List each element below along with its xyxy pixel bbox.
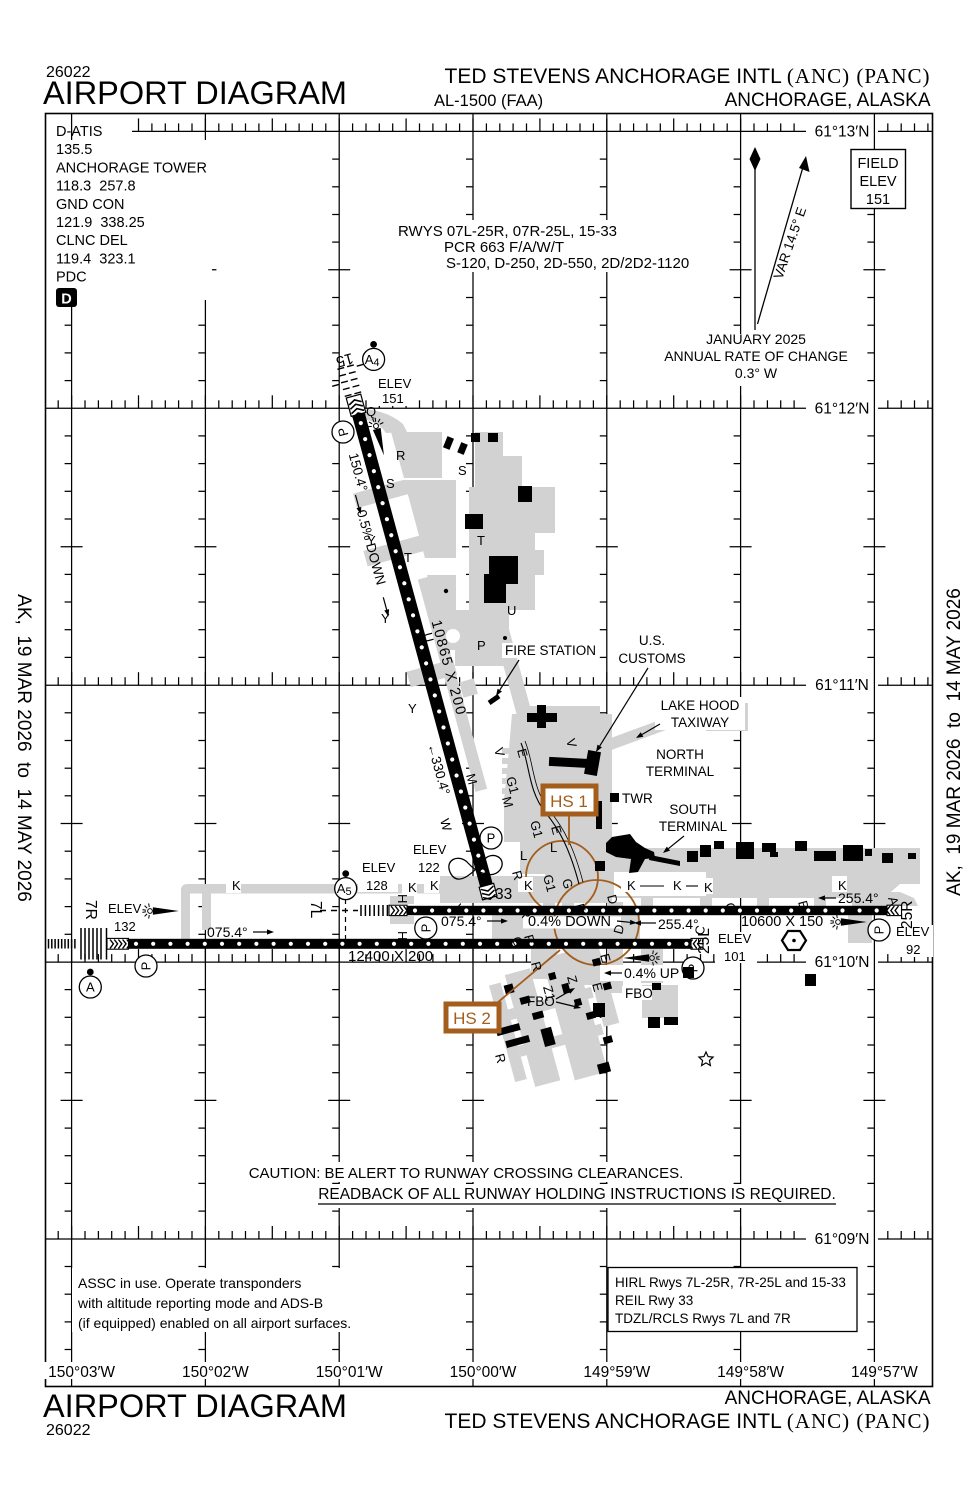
svg-text:PCR 663 F/A/W/T: PCR 663 F/A/W/T [444, 239, 564, 256]
svg-text:AIRPORT DIAGRAM: AIRPORT DIAGRAM [43, 1388, 347, 1424]
svg-text:149°58′W: 149°58′W [717, 1364, 784, 1381]
svg-text:T: T [404, 550, 412, 565]
svg-text:FIRE STATION: FIRE STATION [505, 643, 596, 658]
svg-text:33: 33 [495, 886, 512, 903]
svg-text:TERMINAL: TERMINAL [659, 819, 728, 834]
svg-text:K: K [838, 878, 847, 893]
svg-text:with altitude reporting mode a: with altitude reporting mode and ADS-B [77, 1295, 323, 1311]
svg-text:075.4°: 075.4° [207, 924, 248, 940]
svg-text:25L: 25L [696, 928, 713, 954]
svg-text:ANCHORAGE, ALASKA: ANCHORAGE, ALASKA [725, 1388, 931, 1409]
svg-text:P: P [487, 831, 496, 846]
svg-text:LAKE HOOD: LAKE HOOD [661, 698, 740, 713]
svg-text:K: K [524, 878, 533, 893]
svg-text:ELEV: ELEV [413, 842, 447, 857]
svg-text:CUSTOMS: CUSTOMS [618, 651, 685, 666]
svg-text:FIELD: FIELD [857, 156, 898, 172]
svg-text:AL-1500 (FAA): AL-1500 (FAA) [434, 92, 543, 110]
svg-text:150°02′W: 150°02′W [182, 1364, 249, 1381]
svg-text:K: K [232, 878, 241, 893]
svg-text:HS 2: HS 2 [453, 1009, 491, 1028]
svg-text:61°09′N: 61°09′N [815, 1231, 870, 1248]
svg-text:P: P [872, 926, 887, 935]
svg-text:FBO: FBO [625, 986, 653, 1001]
svg-text:TAXIWAY: TAXIWAY [671, 715, 729, 730]
svg-text:7R: 7R [82, 900, 99, 920]
svg-text:0.4% UP: 0.4% UP [624, 965, 679, 981]
svg-text:A: A [86, 980, 95, 995]
svg-text:K: K [704, 880, 713, 895]
svg-text:RWYS 07L-25R, 07R-25L, 15-33: RWYS 07L-25R, 07R-25L, 15-33 [398, 223, 617, 240]
svg-text:ASSC in use. Operate transpond: ASSC in use. Operate transponders [78, 1275, 301, 1291]
svg-text:AIRPORT DIAGRAM: AIRPORT DIAGRAM [43, 75, 347, 111]
svg-text:25R: 25R [899, 901, 916, 929]
svg-text:L: L [520, 848, 527, 863]
svg-text:150°03′W: 150°03′W [48, 1364, 115, 1381]
svg-text:ELEV: ELEV [859, 174, 896, 190]
svg-text:R: R [396, 448, 405, 463]
svg-text:S: S [458, 463, 467, 478]
svg-text:151: 151 [866, 192, 890, 208]
svg-text:075.4°: 075.4° [441, 913, 482, 929]
svg-text:CAUTION: BE ALERT TO RUNWAY CR: CAUTION: BE ALERT TO RUNWAY CROSSING CLE… [249, 1165, 684, 1182]
svg-text:GND CON: GND CON [56, 197, 124, 213]
svg-text:118.3 257.8: 118.3 257.8 [56, 179, 136, 195]
svg-text:P: P [418, 924, 433, 933]
svg-text:149°57′W: 149°57′W [851, 1364, 918, 1381]
svg-text:122: 122 [418, 860, 440, 875]
svg-text:Y: Y [381, 611, 390, 626]
svg-text:10600 X 150: 10600 X 150 [741, 914, 823, 930]
svg-text:61°11′N: 61°11′N [815, 677, 869, 694]
svg-text:150°00′W: 150°00′W [450, 1364, 517, 1381]
svg-text:ELEV: ELEV [362, 860, 396, 875]
svg-text:K: K [627, 878, 636, 893]
svg-text:HS 1: HS 1 [550, 792, 588, 811]
svg-text:26022: 26022 [46, 1422, 91, 1439]
svg-text:119.4 323.1: 119.4 323.1 [56, 251, 136, 267]
svg-text:12400 X 200: 12400 X 200 [348, 948, 433, 965]
svg-text:ELEV: ELEV [718, 931, 752, 946]
svg-text:H: H [395, 931, 410, 940]
svg-text:0.3° W: 0.3° W [735, 365, 778, 381]
svg-text:TDZL/RCLS Rwys 7L and 7R: TDZL/RCLS Rwys 7L and 7R [615, 1311, 791, 1326]
svg-text:READBACK OF ALL RUNWAY HOLDING: READBACK OF ALL RUNWAY HOLDING INSTRUCTI… [318, 1186, 836, 1203]
svg-text:S-120, D-250, 2D-550, 2D/2D2-1: S-120, D-250, 2D-550, 2D/2D2-1120 [446, 255, 689, 272]
svg-text:151: 151 [382, 391, 404, 406]
svg-text:Y: Y [408, 701, 417, 716]
svg-text:U: U [507, 603, 516, 618]
svg-text:NORTH: NORTH [656, 747, 704, 762]
svg-text:ANCHORAGE TOWER: ANCHORAGE TOWER [56, 160, 207, 176]
svg-text:AK, 19 MAR 2026 to 14 MAY 2: AK, 19 MAR 2026 to 14 MAY 2026 [13, 594, 34, 902]
svg-text:Y: Y [367, 533, 376, 548]
svg-text:K: K [408, 880, 417, 895]
svg-text:128: 128 [366, 878, 388, 893]
svg-text:HIRL Rwys 7L-25R, 7R-25L and 1: HIRL Rwys 7L-25R, 7R-25L and 15-33 [615, 1275, 846, 1290]
svg-text:H: H [395, 894, 410, 903]
svg-text:S: S [386, 476, 395, 491]
svg-text:TED STEVENS ANCHORAGE INTL (AN: TED STEVENS ANCHORAGE INTL (ANC) (PANC) [445, 64, 931, 88]
svg-text:ANNUAL RATE OF CHANGE: ANNUAL RATE OF CHANGE [664, 348, 848, 364]
svg-text:SOUTH: SOUTH [669, 802, 716, 817]
svg-text:AK, 19 MAR 2026 to 14 MAY 2: AK, 19 MAR 2026 to 14 MAY 2026 [944, 588, 965, 896]
svg-text:U.S.: U.S. [639, 633, 665, 648]
svg-text:K: K [430, 878, 439, 893]
svg-text:0.4% DOWN: 0.4% DOWN [528, 914, 611, 930]
svg-text:REIL Rwy 33: REIL Rwy 33 [615, 1293, 693, 1308]
svg-text:101: 101 [724, 949, 746, 964]
svg-text:Q: Q [366, 404, 376, 419]
svg-text:TERMINAL: TERMINAL [646, 764, 715, 779]
svg-text:92: 92 [906, 942, 920, 957]
svg-text:L: L [550, 840, 557, 855]
svg-text:ANCHORAGE, ALASKA: ANCHORAGE, ALASKA [725, 90, 931, 111]
svg-text:ELEV: ELEV [108, 901, 142, 916]
svg-text:61°13′N: 61°13′N [815, 123, 870, 140]
svg-text:132: 132 [114, 919, 136, 934]
svg-text:D-ATIS: D-ATIS [56, 124, 102, 140]
svg-text:P: P [477, 638, 486, 653]
svg-text:(if equipped) enabled on all a: (if equipped) enabled on all airport sur… [78, 1315, 351, 1331]
svg-text:CLNC DEL: CLNC DEL [56, 233, 128, 249]
svg-text:ELEV: ELEV [378, 376, 412, 391]
svg-text:7L: 7L [307, 901, 324, 919]
svg-text:121.9 338.25: 121.9 338.25 [56, 215, 145, 231]
svg-text:TED STEVENS ANCHORAGE INTL (AN: TED STEVENS ANCHORAGE INTL (ANC) (PANC) [445, 1409, 931, 1433]
svg-text:135.5: 135.5 [56, 142, 92, 158]
svg-text:K: K [673, 878, 682, 893]
svg-text:T: T [477, 533, 485, 548]
svg-text:JANUARY 2025: JANUARY 2025 [706, 331, 806, 347]
svg-text:149°59′W: 149°59′W [583, 1364, 650, 1381]
svg-text:TWR: TWR [622, 791, 653, 806]
svg-text:61°12′N: 61°12′N [815, 400, 870, 417]
svg-text:P: P [139, 962, 154, 971]
svg-text:D: D [61, 292, 71, 308]
svg-text:61°10′N: 61°10′N [815, 954, 870, 971]
svg-text:PDC: PDC [56, 270, 87, 286]
svg-text:150°01′W: 150°01′W [316, 1364, 383, 1381]
